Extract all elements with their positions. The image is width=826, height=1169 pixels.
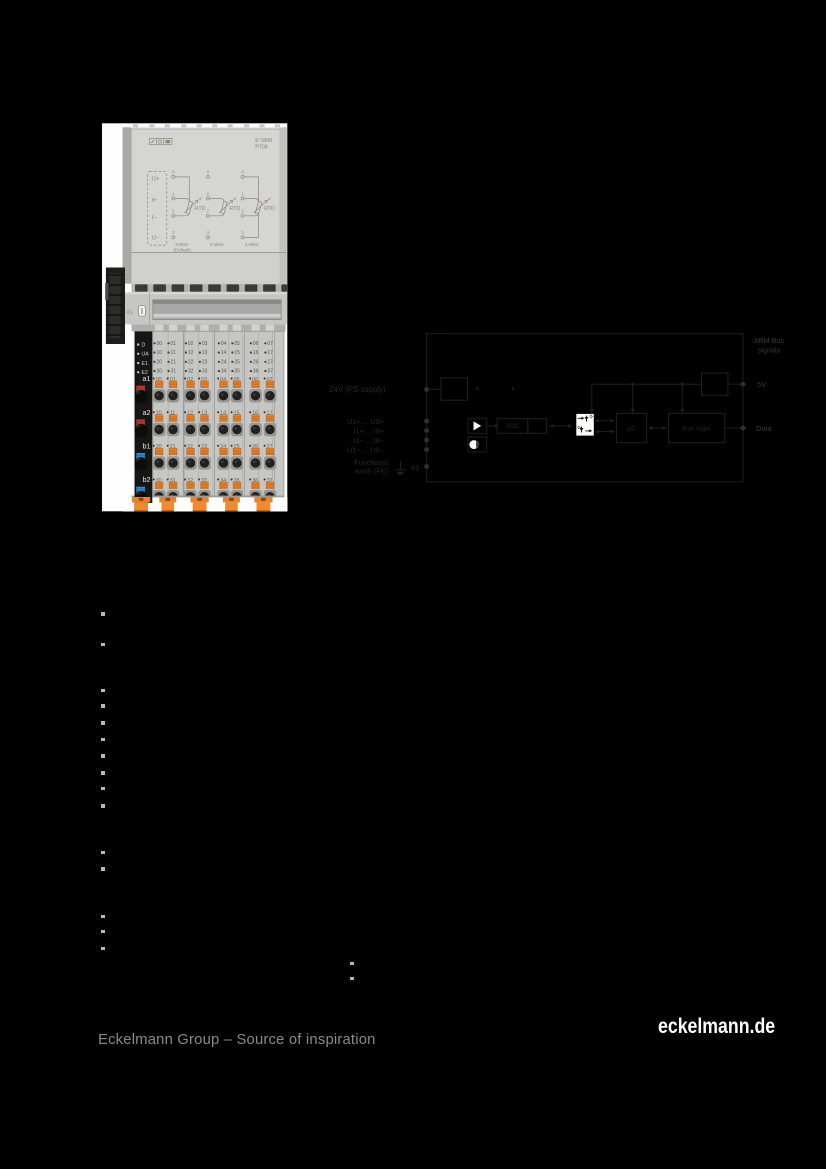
- svg-text:34: 34: [220, 369, 226, 375]
- svg-text:12: 12: [187, 350, 193, 356]
- svg-text:00: 00: [156, 341, 162, 347]
- svg-text:33: 33: [201, 369, 207, 375]
- svg-text:Data: Data: [756, 424, 773, 433]
- svg-text:signals: signals: [758, 345, 781, 354]
- svg-text:14: 14: [220, 350, 226, 356]
- svg-text:(Default): (Default): [173, 247, 191, 252]
- svg-text:07: 07: [267, 341, 273, 347]
- svg-text:36: 36: [252, 369, 258, 375]
- svg-text:µC: µC: [627, 426, 636, 433]
- svg-text:32: 32: [187, 369, 193, 375]
- svg-text:21: 21: [170, 360, 176, 366]
- svg-text:16: 16: [252, 350, 258, 356]
- svg-text:23: 23: [201, 360, 207, 366]
- svg-text:b1: b1: [142, 442, 150, 451]
- svg-text:04: 04: [220, 341, 226, 347]
- svg-text:15: 15: [234, 350, 240, 356]
- svg-text:ADC: ADC: [506, 423, 520, 430]
- svg-text:D: D: [141, 343, 145, 349]
- svg-text:I−: I−: [151, 216, 157, 222]
- svg-text:U1− ... U8−: U1− ... U8−: [347, 446, 384, 455]
- svg-text:RTD: RTD: [229, 206, 240, 212]
- svg-text:01: 01: [170, 341, 176, 347]
- svg-text:02: 02: [187, 341, 193, 347]
- svg-text:a2: a2: [142, 408, 150, 417]
- svg-text:11: 11: [170, 350, 175, 356]
- svg-text:Functional: Functional: [354, 458, 388, 467]
- svg-text:U−: U−: [151, 236, 159, 242]
- svg-text:35: 35: [234, 369, 240, 375]
- svg-text:27: 27: [267, 360, 273, 366]
- svg-text:Bus logic: Bus logic: [683, 426, 711, 433]
- svg-text:PT08: PT08: [255, 144, 268, 150]
- svg-text:13: 13: [201, 350, 207, 356]
- svg-text:22: 22: [187, 360, 193, 366]
- svg-text:26: 26: [252, 360, 258, 366]
- svg-text:I1+ ... I8+: I1+ ... I8+: [354, 427, 384, 436]
- svg-text:05: 05: [234, 341, 240, 347]
- svg-text:5V: 5V: [757, 380, 766, 389]
- svg-text:U+: U+: [151, 177, 159, 183]
- svg-text:17: 17: [267, 350, 273, 356]
- svg-text:03: 03: [201, 341, 207, 347]
- svg-text:24V (PS supply): 24V (PS supply): [329, 385, 386, 394]
- svg-text:I+: I+: [151, 198, 157, 204]
- svg-text:24: 24: [220, 360, 226, 366]
- svg-text:4-Wire: 4-Wire: [245, 242, 259, 247]
- svg-text:RTD: RTD: [194, 206, 205, 212]
- svg-text:RTD: RTD: [264, 206, 275, 212]
- svg-text:earth (FE): earth (FE): [355, 467, 388, 476]
- svg-text:31: 31: [170, 369, 176, 375]
- svg-text:X1: X1: [411, 463, 420, 472]
- svg-text:20: 20: [156, 360, 162, 366]
- svg-text:E1: E1: [141, 361, 147, 367]
- svg-text:X1: X1: [126, 310, 133, 316]
- svg-text:a1: a1: [142, 374, 150, 383]
- svg-text:b2: b2: [142, 475, 150, 484]
- svg-text:10: 10: [156, 350, 162, 356]
- svg-text:UA: UA: [141, 352, 149, 358]
- svg-text:U1+ ... U8+: U1+ ... U8+: [347, 417, 384, 426]
- svg-text:XBM Bus: XBM Bus: [754, 336, 784, 345]
- svg-text:30: 30: [156, 369, 162, 375]
- svg-text:25: 25: [234, 360, 240, 366]
- svg-text:37: 37: [267, 369, 273, 375]
- svg-text:E°XBM: E°XBM: [255, 138, 272, 144]
- svg-text:06: 06: [252, 341, 258, 347]
- svg-text:2-Wire: 2-Wire: [210, 242, 224, 247]
- svg-text:I1− ... I8−: I1− ... I8−: [354, 436, 384, 445]
